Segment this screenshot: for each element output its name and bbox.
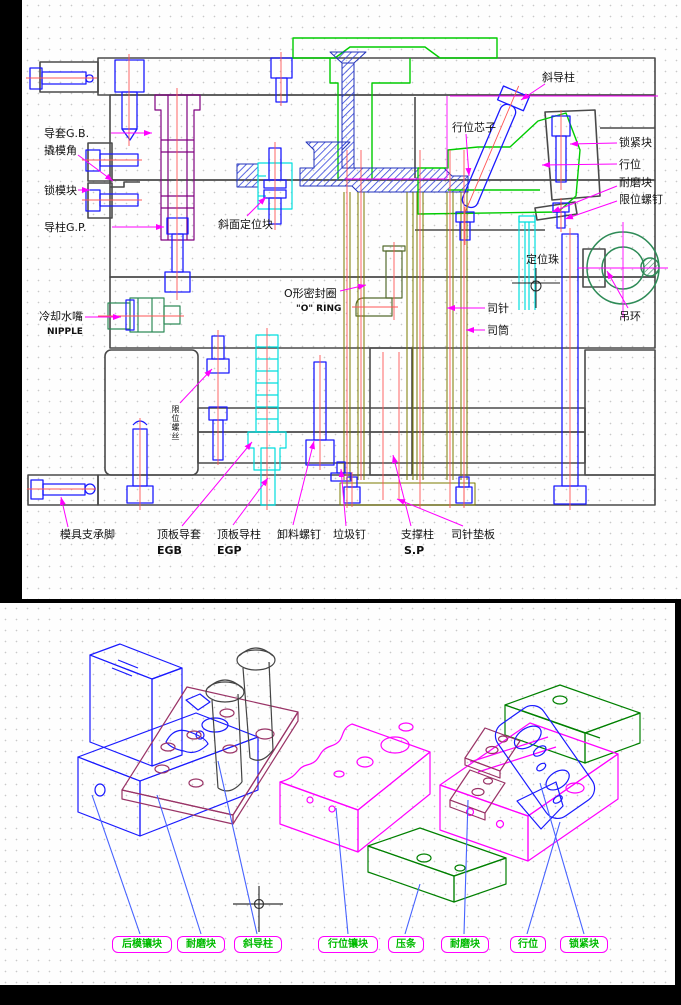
cad-canvas: 导套G.B. 撬模角 锁模块 导柱G.P. 斜面定位块 冷却水嘴 NIPPLE … — [0, 0, 681, 1005]
section-view-sheet — [22, 0, 681, 599]
exploded-view-sheet — [0, 603, 675, 985]
